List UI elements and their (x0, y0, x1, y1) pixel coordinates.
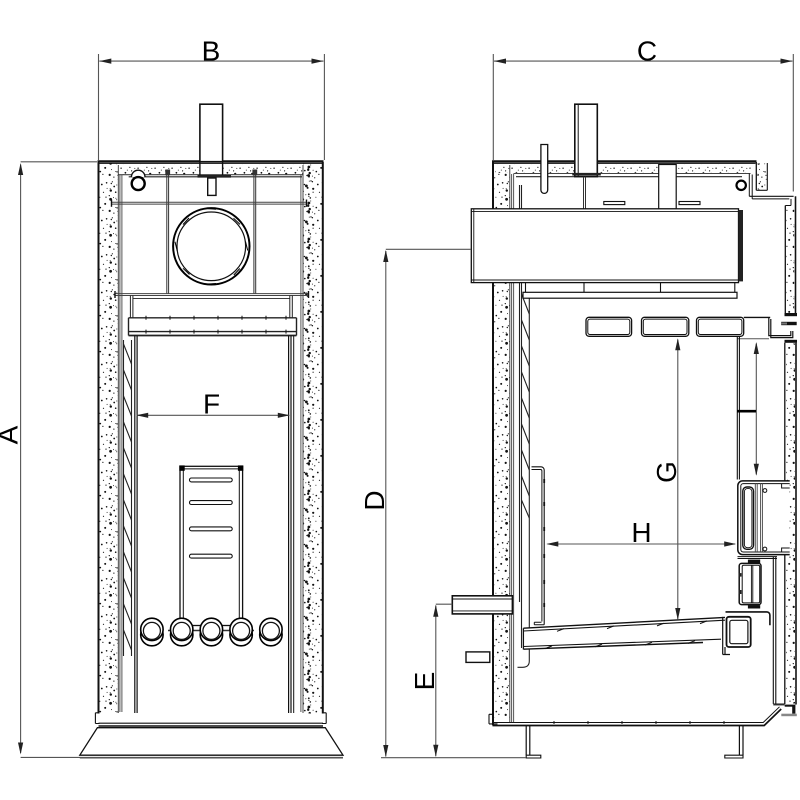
svg-text:D: D (359, 490, 390, 510)
svg-text:B: B (202, 35, 221, 66)
svg-text:A: A (0, 425, 24, 444)
svg-text:E: E (409, 672, 440, 691)
svg-text:C: C (637, 35, 657, 66)
svg-text:H: H (631, 517, 651, 548)
svg-text:F: F (203, 389, 220, 420)
svg-text:I: I (731, 407, 762, 415)
svg-text:G: G (651, 461, 682, 483)
